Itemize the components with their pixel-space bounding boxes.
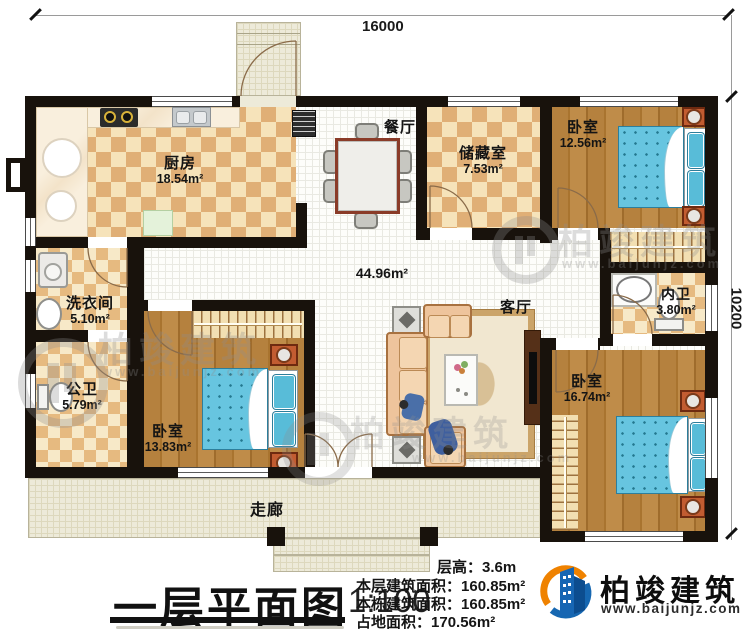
room-label-bedroom-sw: 卧室13.83m²: [145, 420, 192, 454]
room-label-great-room-area: 44.96m²: [356, 266, 408, 281]
room-label-laundry: 洗衣间5.10m²: [66, 292, 114, 326]
room-label-dining: 餐厅: [384, 116, 416, 137]
room-label-living: 客厅: [500, 296, 532, 317]
room-label-public-bath: 公卫5.79m²: [62, 378, 102, 412]
room-label-kitchen: 厨房18.54m²: [157, 152, 204, 186]
room-label-ensuite-bath: 内卫3.80m²: [656, 284, 696, 317]
room-label-storage: 储藏室7.53m²: [459, 142, 507, 176]
room-label-corridor: 走廊: [250, 496, 284, 520]
room-label-bedroom-ne: 卧室12.56m²: [560, 116, 607, 150]
floor-plan-page: { "dimensions": { "top": "16000", "right…: [0, 0, 750, 632]
room-label-bedroom-se: 卧室16.74m²: [564, 370, 611, 404]
